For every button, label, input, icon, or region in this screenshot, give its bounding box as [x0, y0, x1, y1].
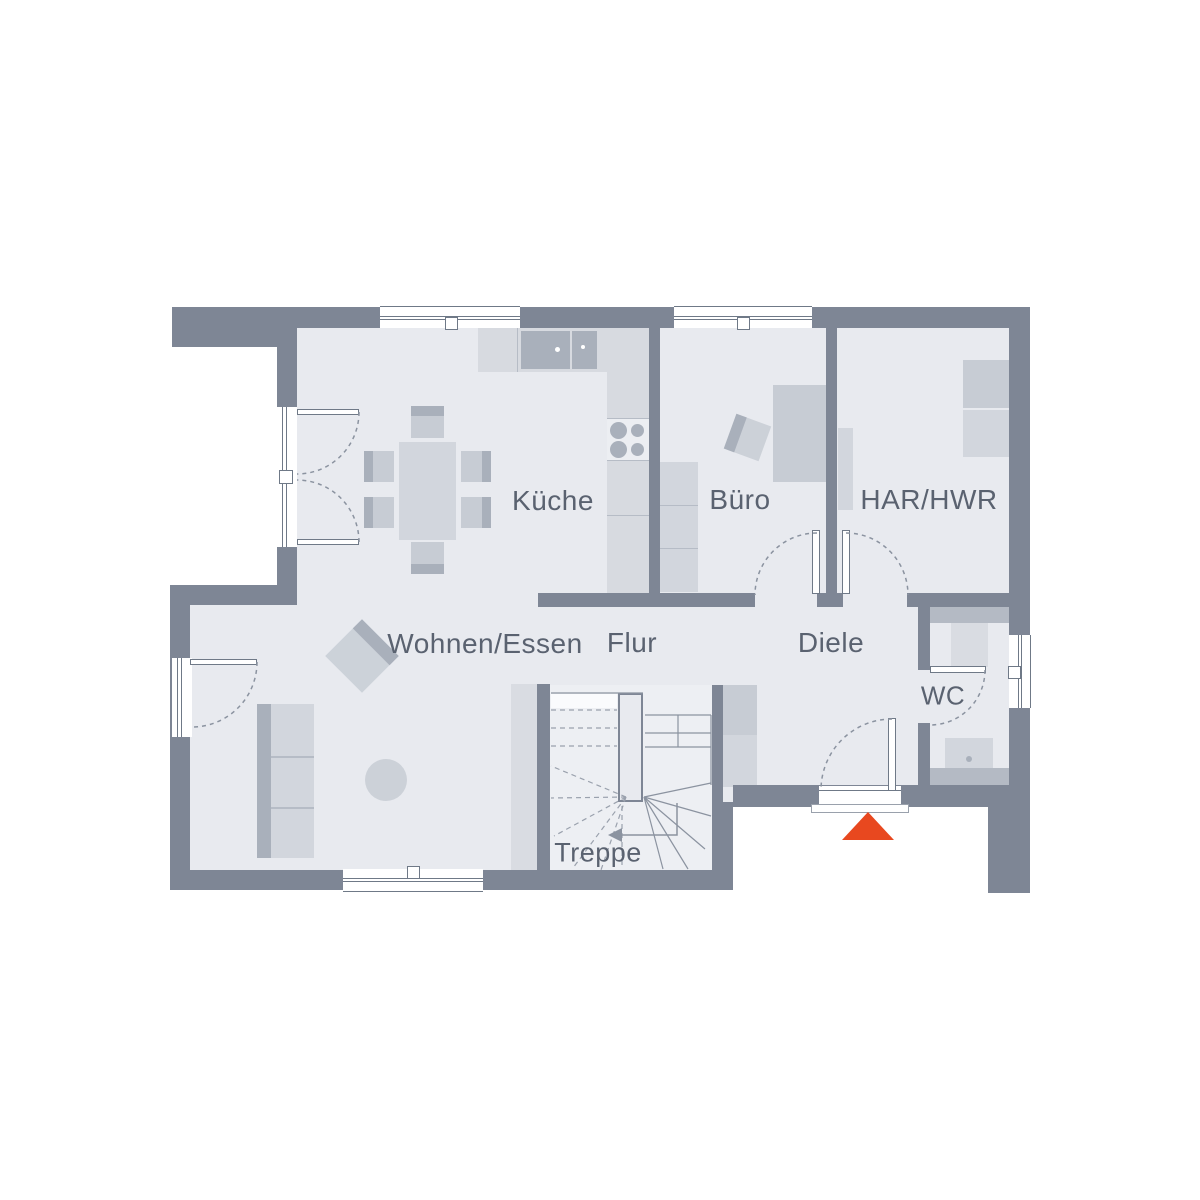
wc-sink [945, 738, 993, 768]
sofa-cushion-divider [271, 807, 314, 809]
dining-chair-back [411, 406, 444, 416]
buero-door-leaf [812, 530, 820, 594]
stair-spine [618, 693, 643, 802]
hob-burner [610, 422, 627, 439]
wall [170, 585, 190, 890]
wc-cistern [930, 607, 1009, 623]
wall-stair-west [537, 684, 550, 870]
window-marker [445, 317, 458, 330]
wc-vanity [930, 768, 1009, 785]
stair-first-tread [551, 694, 617, 708]
wall [172, 328, 277, 347]
hob-burner [631, 424, 644, 437]
bookshelf [660, 462, 698, 592]
wall [172, 307, 1030, 328]
dining-chair-back [482, 497, 491, 528]
coffee-table [365, 759, 407, 801]
window-marker [407, 866, 420, 879]
bookshelf-divider [660, 548, 698, 549]
toilet [951, 623, 988, 667]
entrance-door-leaf [888, 718, 896, 791]
faucet-dot [555, 347, 560, 352]
dining-chair-back [364, 497, 373, 528]
room-label-treppe: Treppe [554, 838, 642, 869]
room-label-flur: Flur [607, 627, 657, 659]
room-label-wohnen-essen: Wohnen/Essen [387, 628, 582, 660]
room-label-kueche: Küche [512, 485, 594, 517]
har-door-leaf [842, 530, 850, 594]
terrace-door-leaf [190, 659, 257, 665]
closet [723, 735, 757, 787]
wall-flur-east [907, 593, 1010, 607]
wc-sink-drain [966, 756, 972, 762]
entrance-sill [811, 804, 909, 813]
wall-flur [538, 593, 755, 607]
dryer [963, 410, 1009, 457]
french-door-leaf [297, 409, 359, 415]
dining-table [399, 442, 456, 540]
kitchen-counter-divider [517, 328, 518, 372]
desk [773, 385, 826, 482]
counter-divider [607, 515, 649, 516]
terrace-door-frame [172, 658, 192, 737]
wall [988, 802, 1030, 893]
wc-door-leaf [930, 666, 986, 673]
door-marker [279, 470, 293, 484]
har-shelf [838, 428, 853, 510]
floor-plan-canvas: Küche Büro HAR/HWR Wohnen/Essen Flur Die… [0, 0, 1200, 1200]
hob-burner [610, 441, 627, 458]
sideboard [511, 684, 537, 870]
sofa-cushion-divider [271, 756, 314, 758]
wall-kueche-buero [649, 328, 660, 593]
kitchen-sink-divider [570, 331, 572, 369]
wall-door-footing [817, 593, 843, 607]
room-label-diele: Diele [798, 627, 864, 659]
washer [963, 360, 1009, 408]
entrance-marker-icon [842, 812, 894, 840]
wall-wc [918, 723, 930, 786]
french-door-leaf [297, 539, 359, 545]
kitchen-counter-right [607, 372, 649, 593]
faucet-dot [581, 345, 585, 349]
wall-wc [918, 607, 930, 670]
sofa-back [257, 704, 271, 858]
dining-chair-back [364, 451, 373, 482]
hob-burner [631, 443, 644, 456]
closet [723, 685, 757, 735]
wall-stair-corner [712, 802, 733, 890]
bookshelf-divider [660, 505, 698, 506]
window-marker [737, 317, 750, 330]
dining-chair-back [482, 451, 491, 482]
room-label-buero: Büro [709, 484, 770, 516]
room-label-har-hwr: HAR/HWR [860, 484, 997, 516]
room-label-wc: WC [921, 681, 965, 712]
window-marker [1008, 666, 1021, 679]
counter-divider [607, 460, 649, 461]
dining-chair-back [411, 564, 444, 574]
wall-buero-har [826, 328, 837, 593]
